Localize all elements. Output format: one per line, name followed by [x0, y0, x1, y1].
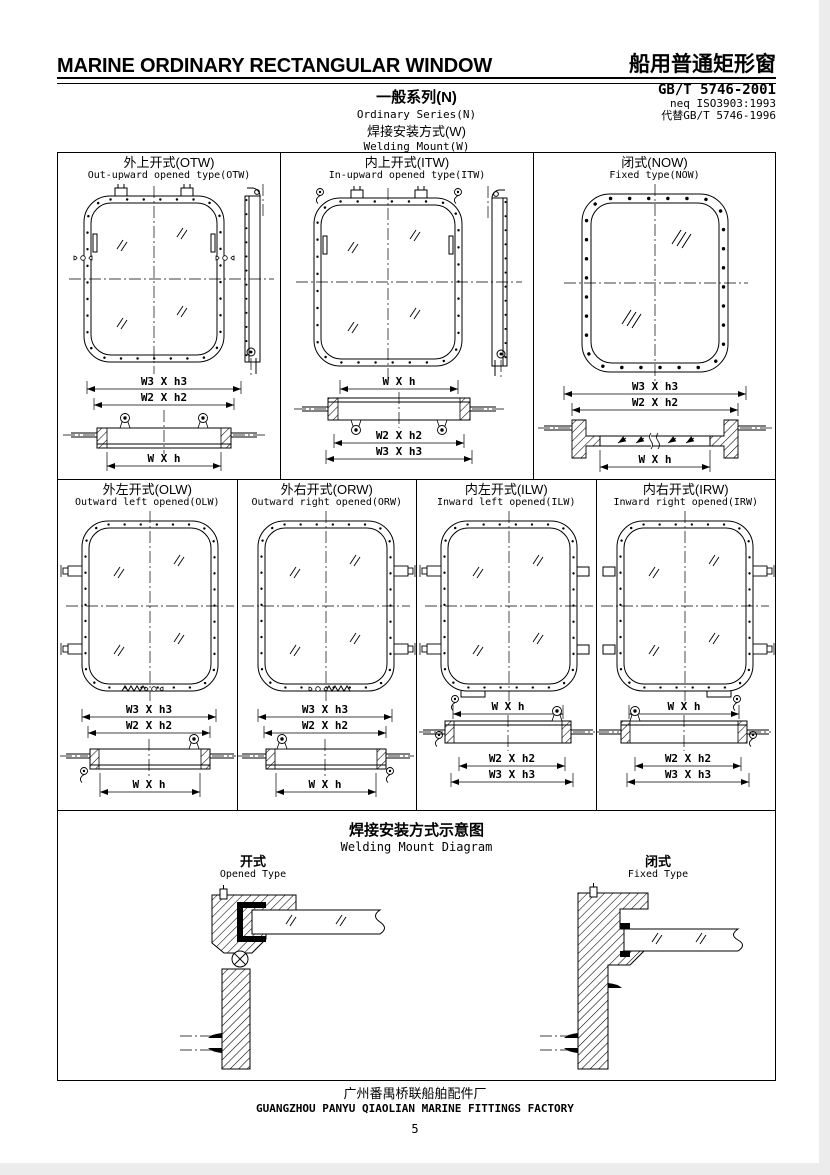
svg-text:W X h: W X h — [491, 700, 524, 713]
svg-text:W X h: W X h — [382, 375, 415, 388]
cell-itw-label-en: In-upward opened type(ITW) — [281, 169, 533, 182]
svg-text:W X h: W X h — [132, 778, 165, 791]
cell-irw: 内右开式(IRW) Inward right opened(IRW) — [597, 480, 776, 810]
otw-drawing: W3 X h3 W2 X h2 — [59, 182, 280, 476]
page-edge-bottom — [0, 1163, 830, 1175]
cell-itw-label-zh: 内上开式(ITW) — [281, 156, 533, 169]
cell-olw: 外左开式(OLW) Outward left opened(OLW) — [58, 480, 238, 810]
cell-orw-label-zh: 外右开式(ORW) — [238, 483, 417, 496]
cell-orw-label-en: Outward right opened(ORW) — [238, 496, 417, 509]
welding-section: 焊接安装方式示意图 Welding Mount Diagram 开式 Opene… — [58, 811, 775, 1080]
series-en: Ordinary Series(N) — [57, 108, 776, 121]
cell-orw: 外右开式(ORW) Outward right opened(ORW) — [238, 480, 418, 810]
svg-text:W2 X h2: W2 X h2 — [489, 752, 535, 765]
svg-text:W2 X h2: W2 X h2 — [632, 396, 678, 409]
factory-name-zh: 广州番禺桥联船舶配件厂 — [0, 1086, 830, 1101]
svg-text:W3 X h3: W3 X h3 — [664, 768, 710, 781]
page-title-en: MARINE ORDINARY RECTANGULAR WINDOW — [57, 55, 492, 78]
svg-text:W2 X h2: W2 X h2 — [140, 391, 186, 404]
mount-heading: 焊接安装方式(W) Welding Mount(W) — [57, 121, 776, 153]
svg-text:W X h: W X h — [147, 452, 180, 465]
fixed-type-detail — [538, 883, 768, 1075]
svg-text:W X h: W X h — [667, 700, 700, 713]
svg-text:W2 X h2: W2 X h2 — [126, 719, 172, 732]
page-edge-right — [819, 0, 830, 1175]
mount-zh: 焊接安装方式(W) — [57, 121, 776, 140]
factory-name-en: GUANGZHOU PANYU QIAOLIAN MARINE FITTINGS… — [0, 1101, 830, 1116]
olw-drawing: W3 X h3 W2 X h2 — [58, 509, 237, 805]
orw-drawing: W3 X h3 W2 X h2 — [238, 509, 417, 805]
svg-text:W3 X h3: W3 X h3 — [375, 445, 421, 458]
page-number: 5 — [0, 1122, 830, 1136]
svg-text:W X h: W X h — [308, 778, 341, 791]
cell-otw-label-en: Out-upward opened type(OTW) — [58, 169, 280, 182]
svg-text:W3 X h3: W3 X h3 — [301, 703, 347, 716]
now-drawing: W3 X h3 W2 X h2 — [534, 182, 775, 476]
series-zh: 一般系列(N) — [57, 86, 776, 107]
svg-text:W2 X h2: W2 X h2 — [664, 752, 710, 765]
spec-table: 外上开式(OTW) Out-upward opened type(OTW) — [57, 152, 776, 1081]
table-row: 外上开式(OTW) Out-upward opened type(OTW) — [58, 153, 775, 480]
cell-now: 闭式(NOW) Fixed type(NOW) W3 X h3 — [534, 153, 775, 479]
cell-otw-label-zh: 外上开式(OTW) — [58, 156, 280, 169]
cell-now-label-en: Fixed type(NOW) — [534, 169, 775, 182]
footer: 广州番禺桥联船舶配件厂 GUANGZHOU PANYU QIAOLIAN MAR… — [0, 1086, 830, 1116]
ilw-drawing: W X h W2 X h2 — [417, 509, 596, 805]
svg-text:W3 X h3: W3 X h3 — [140, 375, 186, 388]
svg-text:W3 X h3: W3 X h3 — [126, 703, 172, 716]
header: MARINE ORDINARY RECTANGULAR WINDOW 船用普通矩… — [57, 48, 776, 78]
cell-ilw: 内左开式(ILW) Inward left opened(ILW) — [417, 480, 597, 810]
cell-olw-label-zh: 外左开式(OLW) — [58, 483, 237, 496]
itw-drawing: W X h W2 X h2 W — [282, 182, 533, 476]
cell-otw: 外上开式(OTW) Out-upward opened type(OTW) — [58, 153, 281, 479]
opened-type-label: 开式 Opened Type — [188, 855, 318, 881]
page-title-zh: 船用普通矩形窗 — [629, 48, 776, 78]
cell-now-label-zh: 闭式(NOW) — [534, 156, 775, 169]
cell-irw-label-en: Inward right opened(IRW) — [597, 496, 776, 509]
cell-irw-label-zh: 内右开式(IRW) — [597, 483, 776, 496]
cell-ilw-label-en: Inward left opened(ILW) — [417, 496, 596, 509]
svg-text:W2 X h2: W2 X h2 — [375, 429, 421, 442]
fixed-type-label: 闭式 Fixed Type — [593, 855, 723, 881]
opened-type-detail — [178, 883, 408, 1075]
svg-text:W3 X h3: W3 X h3 — [632, 380, 678, 393]
series-heading: 一般系列(N) Ordinary Series(N) — [57, 86, 776, 121]
svg-text:W2 X h2: W2 X h2 — [301, 719, 347, 732]
svg-text:W X h: W X h — [638, 453, 671, 466]
cell-olw-label-en: Outward left opened(OLW) — [58, 496, 237, 509]
cell-itw: 内上开式(ITW) In-upward opened type(ITW) — [281, 153, 534, 479]
cell-ilw-label-zh: 内左开式(ILW) — [417, 483, 596, 496]
irw-drawing: W X h W2 X h2 — [597, 509, 776, 805]
welding-title-en: Welding Mount Diagram — [58, 840, 775, 854]
table-row: 外左开式(OLW) Outward left opened(OLW) — [58, 480, 775, 811]
svg-text:W3 X h3: W3 X h3 — [489, 768, 535, 781]
catalog-page: MARINE ORDINARY RECTANGULAR WINDOW 船用普通矩… — [0, 0, 830, 1175]
welding-title-zh: 焊接安装方式示意图 — [58, 819, 775, 840]
welding-title: 焊接安装方式示意图 Welding Mount Diagram — [58, 819, 775, 854]
